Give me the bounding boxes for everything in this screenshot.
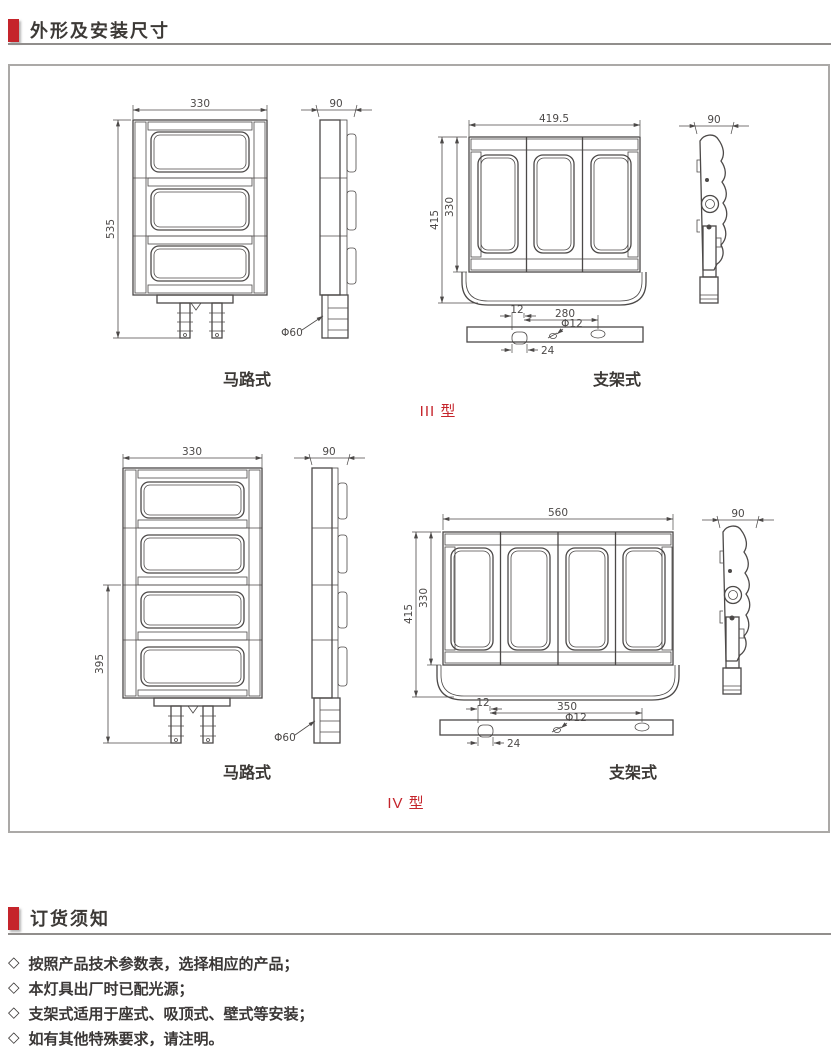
dim-type3-road-width: 330 [190,98,210,110]
dim-type3-plate-offset: 12 [510,304,523,316]
dim-type4-road-side-width: 90 [322,446,335,458]
dim-type4-road-width: 330 [182,446,202,458]
type3-bracket-drawing: 419.5 415 330 [420,108,780,370]
diamond-bullet-icon: ◇ [8,1003,20,1024]
ordering-note-4: ◇ 如有其他特殊要求，请注明。 [8,1028,224,1049]
dim-type3-bracket-height-outer: 415 [429,210,441,230]
dim-type3-bracket-side-width: 90 [707,114,720,126]
dim-type4-bracket-height-outer: 415 [404,604,415,624]
dim-type3-bracket-height-inner: 330 [444,197,456,217]
type4-road-caption: 马路式 [187,759,307,783]
dim-type3-road-height: 535 [105,219,117,239]
note-text: 按照产品技术参数表，选择相应的产品； [29,953,299,974]
ordering-note-3: ◇ 支架式适用于座式、吸顶式、壁式等安装； [8,1003,314,1024]
type4-road-side-view: 90 Φ60 [274,446,365,744]
dim-type4-plate-slot: 24 [507,738,521,750]
diamond-bullet-icon: ◇ [8,1028,20,1049]
type3-road-pole-mount [157,295,233,338]
dim-type3-plate-slot: 24 [541,345,555,357]
note-text: 如有其他特殊要求，请注明。 [29,1028,224,1049]
type3-bracket-caption: 支架式 [557,366,677,390]
type3-bracket-mounting-plate: 12 280 Φ12 24 [467,304,643,357]
type4-bracket-mounting-plate: 12 350 Φ12 24 [440,697,673,750]
type4-road-pole-mount [154,698,230,743]
type4-road-front-view: 330 395 [94,446,262,743]
type3-road-drawing: 330 535 [95,95,375,353]
dim-type4-bracket-width: 560 [548,507,568,519]
diamond-bullet-icon: ◇ [8,978,20,999]
section-title-ordering: 订货须知 [30,905,110,931]
note-text: 支架式适用于座式、吸顶式、壁式等安装； [29,1003,314,1024]
dim-type4-plate-hole: Φ12 [565,712,587,724]
dim-type4-plate-offset: 12 [476,697,489,709]
dim-type3-road-pole-dia: Φ60 [281,327,303,339]
type4-bracket-side-view: 90 [702,508,774,694]
dim-type4-bracket-side-width: 90 [731,508,744,520]
dim-type4-road-pole-dia: Φ60 [274,732,296,744]
type4-label: IV 型 [346,792,466,813]
type4-road-drawing: 330 395 [88,445,378,757]
type3-road-side-view: 90 Φ60 [281,98,372,339]
type4-bracket-front-view: 560 415 330 [404,507,679,700]
type4-bracket-drawing: 560 415 330 [404,502,780,760]
type3-label: III 型 [378,400,498,421]
dim-type3-bracket-width: 419.5 [539,113,569,125]
dim-type3-road-side-width: 90 [329,98,342,110]
ordering-divider [8,933,831,935]
section-header-ordering: 订货须知 [8,905,110,931]
dim-type4-bracket-height-inner: 330 [418,588,430,608]
type3-road-caption: 马路式 [187,366,307,390]
note-text: 本灯具出厂时已配光源； [29,978,194,999]
section-header-dimensions: 外形及安装尺寸 [8,17,170,43]
type3-bracket-side-view: 90 [679,114,749,303]
red-accent-bar-2 [8,907,19,930]
diamond-bullet-icon: ◇ [8,953,20,974]
type3-road-front-view: 330 535 [105,98,267,338]
header-divider [8,43,831,45]
ordering-note-2: ◇ 本灯具出厂时已配光源； [8,978,194,999]
dim-type3-plate-hole: Φ12 [561,318,583,330]
dim-type4-road-height: 395 [94,654,106,674]
type4-bracket-caption: 支架式 [573,759,693,783]
red-accent-bar [8,19,19,42]
ordering-note-1: ◇ 按照产品技术参数表，选择相应的产品； [8,953,299,974]
type3-bracket-front-view: 419.5 415 330 [429,113,646,305]
section-title-dimensions: 外形及安装尺寸 [30,17,170,43]
